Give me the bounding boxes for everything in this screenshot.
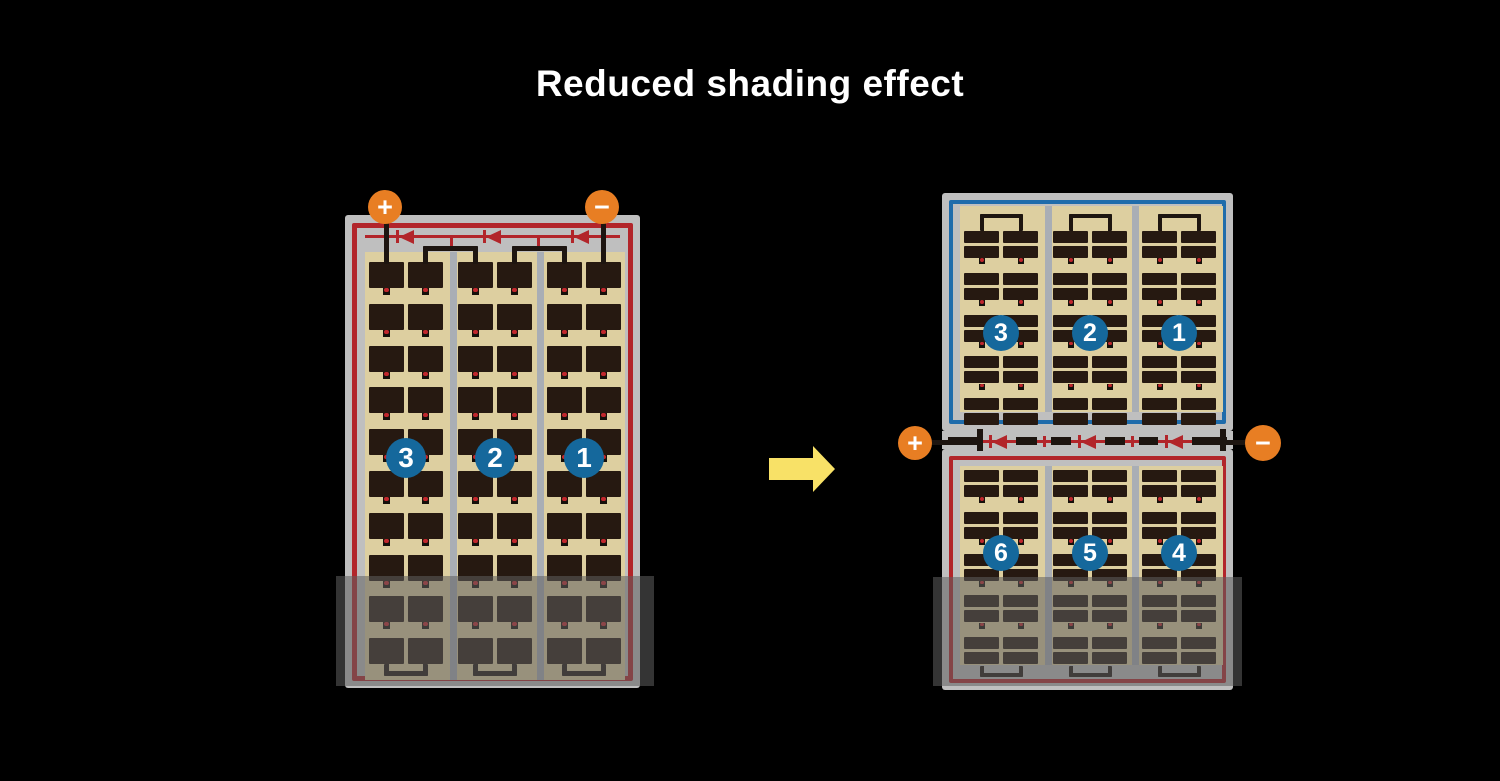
solar-cell <box>408 262 443 288</box>
connector-dot-bottom <box>512 330 517 334</box>
connector-dot-bottom <box>562 372 567 376</box>
junction-riser-left <box>977 429 983 451</box>
connector-dot-bottom <box>1158 258 1162 262</box>
string-number-badge: 1 <box>1161 315 1197 351</box>
connector-dot-bottom <box>384 288 389 292</box>
solar-half-cell <box>1053 470 1088 482</box>
cell-connector <box>561 413 568 429</box>
connector-dot-bottom <box>1069 497 1073 501</box>
cell-connector <box>561 497 568 513</box>
connector-dot-bottom <box>473 539 478 543</box>
connector-dot-bottom <box>1158 539 1162 543</box>
connector-dot-bottom <box>1108 300 1112 304</box>
connector-dot-bottom <box>1197 539 1201 543</box>
solar-half-cell <box>1092 246 1127 258</box>
transform-arrow-head <box>813 446 835 492</box>
cell-connector <box>1018 497 1024 511</box>
cell-connector <box>979 342 985 356</box>
cell-connector <box>1196 300 1202 314</box>
solar-cell <box>586 346 621 372</box>
solar-cell <box>586 304 621 330</box>
cell-connector <box>1018 342 1024 356</box>
solar-cell <box>458 513 493 539</box>
string-number-badge: 5 <box>1072 535 1108 571</box>
solar-half-cell <box>1181 288 1216 300</box>
bypass-diode-bar <box>1078 435 1081 448</box>
left-negative-terminal: − <box>585 190 619 224</box>
junction-bus-segment <box>1139 437 1158 445</box>
cell-connector <box>422 413 429 429</box>
solar-half-cell <box>964 246 999 258</box>
cell-area <box>960 206 1223 412</box>
cell-connector <box>600 372 607 388</box>
solar-half-cell <box>1053 398 1088 410</box>
solar-half-cell <box>1181 231 1216 243</box>
solar-half-cell <box>1142 231 1177 243</box>
solar-cell <box>586 262 621 288</box>
solar-half-cell <box>964 413 999 425</box>
connector-dot-bottom <box>512 372 517 376</box>
solar-half-cell <box>1003 470 1038 482</box>
solar-half-cell <box>1053 371 1088 383</box>
cell-connector <box>1018 384 1024 398</box>
connector-dot-bottom <box>1108 384 1112 388</box>
diode-tap-tick <box>1043 436 1046 447</box>
string-divider <box>1045 206 1052 412</box>
solar-half-cell <box>964 288 999 300</box>
cell-connector <box>561 372 568 388</box>
connector-dot-bottom <box>1019 384 1023 388</box>
connector-dot-bottom <box>980 342 984 346</box>
cell-connector <box>1068 342 1074 356</box>
connector-dot-bottom <box>1197 258 1201 262</box>
solar-half-cell <box>1092 398 1127 410</box>
connector-dot-bottom <box>980 258 984 262</box>
cell-connector <box>1107 342 1113 356</box>
connector-dot-bottom <box>1108 497 1112 501</box>
cell-connector <box>1068 497 1074 511</box>
junction-bus-segment <box>1016 437 1037 445</box>
bypass-diode-icon <box>1081 435 1096 449</box>
solar-half-cell <box>1053 356 1088 368</box>
solar-half-cell <box>1092 288 1127 300</box>
solar-half-cell <box>1142 470 1177 482</box>
cell-connector <box>472 372 479 388</box>
cell-connector <box>1157 258 1163 272</box>
bypass-diode-bar <box>989 435 992 448</box>
cell-connector <box>422 539 429 555</box>
cell-connector <box>600 413 607 429</box>
bypass-diode-bar <box>1165 435 1168 448</box>
connector-dot-bottom <box>384 330 389 334</box>
solar-half-cell <box>964 470 999 482</box>
solar-half-cell <box>1092 231 1127 243</box>
connector-dot-bottom <box>1108 258 1112 262</box>
connector-dot-bottom <box>562 288 567 292</box>
connector-dot-bottom <box>1197 300 1201 304</box>
solar-cell <box>547 304 582 330</box>
connector-dot-bottom <box>1158 342 1162 346</box>
solar-cell <box>586 387 621 413</box>
string-interconnect-wire <box>512 246 567 264</box>
left-positive-terminal: + <box>368 190 402 224</box>
connector-dot-bottom <box>384 539 389 543</box>
cell-connector <box>511 372 518 388</box>
connector-dot-bottom <box>980 497 984 501</box>
solar-cell <box>408 513 443 539</box>
cell-connector <box>1107 384 1113 398</box>
solar-cell <box>408 346 443 372</box>
cell-connector <box>511 497 518 513</box>
solar-half-cell <box>1142 398 1177 410</box>
connector-dot-bottom <box>1108 539 1112 543</box>
connector-dot-bottom <box>980 384 984 388</box>
cell-connector <box>561 330 568 346</box>
solar-cell <box>458 262 493 288</box>
solar-cell <box>547 346 582 372</box>
solar-half-cell <box>1142 413 1177 425</box>
cell-connector <box>511 413 518 429</box>
solar-cell <box>458 304 493 330</box>
cell-connector <box>383 288 390 304</box>
connector-dot-bottom <box>601 539 606 543</box>
solar-half-cell <box>1142 371 1177 383</box>
solar-half-cell <box>1142 273 1177 285</box>
string-number-badge: 3 <box>983 315 1019 351</box>
cell-connector <box>1157 384 1163 398</box>
connector-dot-bottom <box>1069 384 1073 388</box>
connector-dot-bottom <box>384 497 389 501</box>
solar-cell <box>369 262 404 288</box>
bypass-diode-bar <box>483 230 486 243</box>
solar-half-cell <box>1053 413 1088 425</box>
bypass-diode-icon <box>399 230 414 244</box>
solar-half-cell <box>964 231 999 243</box>
cell-connector <box>600 288 607 304</box>
solar-half-cell <box>964 485 999 497</box>
bypass-diode-icon <box>992 435 1007 449</box>
connector-dot-bottom <box>473 330 478 334</box>
solar-half-cell <box>1181 485 1216 497</box>
cell-connector <box>979 384 985 398</box>
solar-half-cell <box>1092 470 1127 482</box>
solar-cell <box>369 346 404 372</box>
solar-half-cell <box>964 273 999 285</box>
cell-connector <box>472 288 479 304</box>
right-positive-terminal: + <box>898 426 932 460</box>
solar-cell <box>369 387 404 413</box>
cell-connector <box>1068 384 1074 398</box>
cell-connector <box>383 413 390 429</box>
connector-dot-bottom <box>1019 258 1023 262</box>
connector-dot-bottom <box>512 288 517 292</box>
connector-dot-bottom <box>601 497 606 501</box>
solar-cell <box>547 387 582 413</box>
solar-cell <box>458 387 493 413</box>
solar-cell <box>497 262 532 288</box>
solar-half-cell <box>1003 512 1038 524</box>
connector-dot-bottom <box>601 372 606 376</box>
solar-half-cell <box>1181 371 1216 383</box>
shading-overlay-left <box>336 576 654 686</box>
solar-half-cell <box>1003 485 1038 497</box>
solar-half-cell <box>1053 231 1088 243</box>
solar-half-cell <box>1053 273 1088 285</box>
solar-cell <box>497 387 532 413</box>
solar-half-cell <box>964 356 999 368</box>
string-number-badge: 4 <box>1161 535 1197 571</box>
cell-connector <box>383 497 390 513</box>
cell-connector <box>1196 384 1202 398</box>
solar-half-cell <box>1003 371 1038 383</box>
solar-half-cell <box>1092 512 1127 524</box>
cell-connector <box>561 539 568 555</box>
solar-half-cell <box>1142 246 1177 258</box>
connector-dot-bottom <box>423 288 428 292</box>
solar-cell <box>408 304 443 330</box>
connector-dot-bottom <box>1069 258 1073 262</box>
connector-dot-bottom <box>512 539 517 543</box>
bypass-diode-bar <box>396 230 399 243</box>
solar-cell <box>458 346 493 372</box>
solar-half-cell <box>1181 273 1216 285</box>
cell-connector <box>511 330 518 346</box>
cell-connector <box>422 497 429 513</box>
connector-dot-bottom <box>562 497 567 501</box>
solar-half-cell <box>1092 485 1127 497</box>
connector-dot-bottom <box>1019 300 1023 304</box>
connector-dot-bottom <box>1069 539 1073 543</box>
solar-half-cell <box>1003 356 1038 368</box>
solar-half-cell <box>1053 485 1088 497</box>
string-number-badge: 2 <box>475 438 515 478</box>
bypass-diode-icon <box>486 230 501 244</box>
connector-dot-bottom <box>423 372 428 376</box>
cell-connector <box>561 288 568 304</box>
connector-dot-bottom <box>1019 497 1023 501</box>
cell-connector <box>383 539 390 555</box>
solar-cell <box>497 346 532 372</box>
connector-dot-bottom <box>980 300 984 304</box>
connector-dot-bottom <box>423 497 428 501</box>
solar-half-cell <box>1053 246 1088 258</box>
junction-bus-segment <box>1051 437 1071 445</box>
cell-connector <box>1157 300 1163 314</box>
cell-connector <box>511 539 518 555</box>
solar-half-cell <box>1181 356 1216 368</box>
connector-dot-bottom <box>1197 342 1201 346</box>
connector-dot-bottom <box>1019 342 1023 346</box>
solar-cell <box>547 262 582 288</box>
solar-half-cell <box>1142 485 1177 497</box>
cell-connector <box>422 288 429 304</box>
cell-connector <box>1107 258 1113 272</box>
solar-cell <box>547 513 582 539</box>
solar-half-cell <box>964 371 999 383</box>
connector-dot-bottom <box>562 539 567 543</box>
solar-half-cell <box>1053 512 1088 524</box>
solar-half-cell <box>1003 398 1038 410</box>
shading-overlay-right <box>933 577 1242 686</box>
string-interconnect-wire <box>1158 214 1201 231</box>
cell-connector <box>511 288 518 304</box>
cell-connector <box>1068 300 1074 314</box>
bypass-diode-icon <box>574 230 589 244</box>
connector-dot-bottom <box>980 539 984 543</box>
cell-connector <box>1157 497 1163 511</box>
string-interconnect-wire <box>980 214 1023 231</box>
cell-connector <box>1107 300 1113 314</box>
connector-dot-bottom <box>384 372 389 376</box>
connector-dot-bottom <box>423 539 428 543</box>
solar-cell <box>586 513 621 539</box>
solar-half-cell <box>1092 273 1127 285</box>
cell-connector <box>979 300 985 314</box>
connector-dot-bottom <box>1158 497 1162 501</box>
string-number-badge: 2 <box>1072 315 1108 351</box>
cell-connector <box>1107 497 1113 511</box>
connector-dot-bottom <box>1108 342 1112 346</box>
connector-dot-bottom <box>601 330 606 334</box>
string-number-badge: 6 <box>983 535 1019 571</box>
solar-half-cell <box>1092 356 1127 368</box>
solar-half-cell <box>1092 371 1127 383</box>
cell-connector <box>1196 342 1202 356</box>
solar-half-cell <box>1003 413 1038 425</box>
diode-tap-tick <box>1131 436 1134 447</box>
connector-dot-bottom <box>473 288 478 292</box>
solar-cell <box>408 387 443 413</box>
transform-arrow <box>769 446 835 492</box>
connector-dot-bottom <box>423 330 428 334</box>
transform-arrow-body <box>769 458 813 480</box>
solar-half-cell <box>1142 356 1177 368</box>
solar-half-cell <box>1181 512 1216 524</box>
solar-half-cell <box>1181 413 1216 425</box>
cell-connector <box>979 497 985 511</box>
negative-lead-wire <box>601 221 606 264</box>
positive-lead-wire <box>384 221 389 264</box>
cell-connector <box>1068 258 1074 272</box>
diagram-canvas: Reduced shading effect 321+−321654+− <box>0 0 1500 781</box>
cell-connector <box>422 330 429 346</box>
connector-dot-bottom <box>1019 539 1023 543</box>
solar-half-cell <box>1003 288 1038 300</box>
solar-half-cell <box>1003 246 1038 258</box>
cell-connector <box>383 372 390 388</box>
connector-dot-bottom <box>1158 300 1162 304</box>
connector-dot-bottom <box>1069 342 1073 346</box>
cell-connector <box>1018 300 1024 314</box>
cell-connector <box>1196 258 1202 272</box>
solar-half-cell <box>1181 246 1216 258</box>
solar-half-cell <box>1181 398 1216 410</box>
cell-connector <box>600 497 607 513</box>
solar-cell <box>497 304 532 330</box>
string-number-badge: 3 <box>386 438 426 478</box>
connector-dot-bottom <box>1197 497 1201 501</box>
cell-connector <box>600 330 607 346</box>
solar-half-cell <box>964 512 999 524</box>
cell-connector <box>383 330 390 346</box>
connector-dot-bottom <box>473 372 478 376</box>
connector-dot-bottom <box>1158 384 1162 388</box>
string-number-badge: 1 <box>564 438 604 478</box>
page-title: Reduced shading effect <box>0 63 1500 105</box>
solar-half-cell <box>1003 273 1038 285</box>
string-divider <box>1132 206 1139 412</box>
solar-cell <box>497 513 532 539</box>
right-negative-terminal: − <box>1245 425 1281 461</box>
solar-half-cell <box>1003 231 1038 243</box>
connector-dot-bottom <box>512 497 517 501</box>
solar-half-cell <box>1092 413 1127 425</box>
solar-half-cell <box>1053 288 1088 300</box>
cell-connector <box>422 372 429 388</box>
cell-connector <box>1018 258 1024 272</box>
connector-dot-bottom <box>1069 300 1073 304</box>
connector-dot-bottom <box>601 288 606 292</box>
solar-cell <box>369 304 404 330</box>
string-interconnect-wire <box>1069 214 1112 231</box>
solar-half-cell <box>964 398 999 410</box>
solar-half-cell <box>1181 470 1216 482</box>
bypass-diode-icon <box>1168 435 1183 449</box>
connector-dot-bottom <box>562 330 567 334</box>
right-top-half-panel-frame: 321 <box>942 193 1233 431</box>
cell-connector <box>472 539 479 555</box>
cell-connector <box>1157 342 1163 356</box>
solar-cell <box>369 513 404 539</box>
string-interconnect-wire <box>423 246 478 264</box>
bypass-diode-bar <box>571 230 574 243</box>
cell-connector <box>1196 497 1202 511</box>
connector-dot-bottom <box>1197 384 1201 388</box>
solar-half-cell <box>1142 512 1177 524</box>
cell-connector <box>979 258 985 272</box>
cell-connector <box>472 497 479 513</box>
solar-half-cell <box>1142 288 1177 300</box>
cell-connector <box>472 413 479 429</box>
connector-dot-bottom <box>473 497 478 501</box>
junction-bus-segment <box>1105 437 1125 445</box>
cell-connector <box>472 330 479 346</box>
cell-connector <box>600 539 607 555</box>
